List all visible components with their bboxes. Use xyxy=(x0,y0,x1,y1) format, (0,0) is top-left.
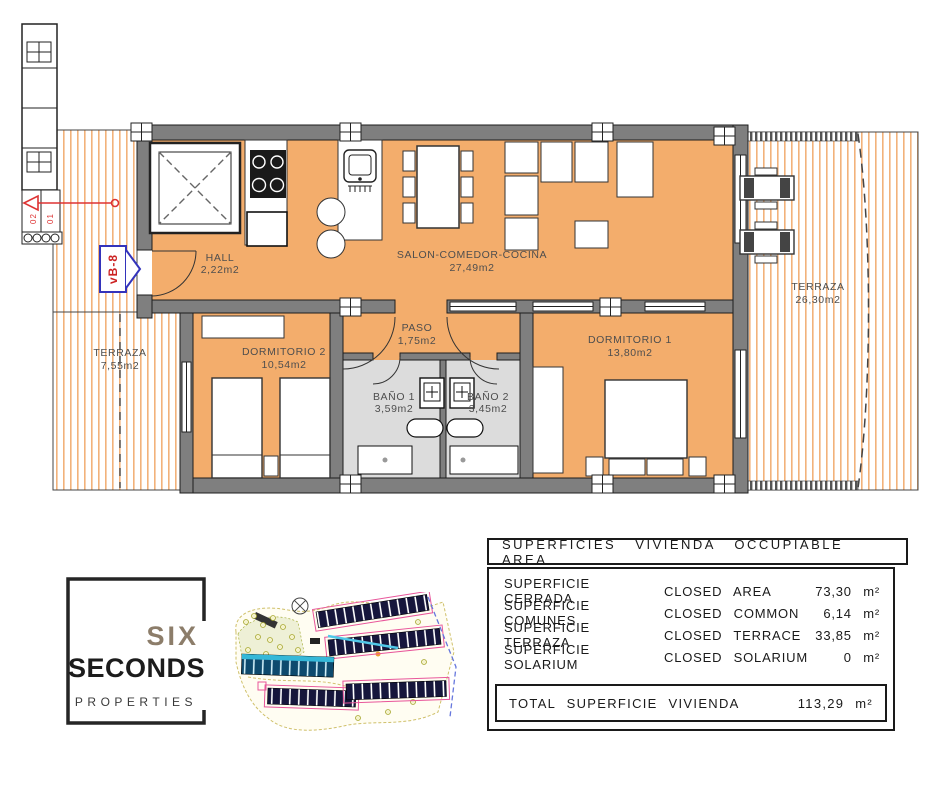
row-value: 6,14 m² xyxy=(823,606,880,621)
areas-table: SUPERFICIE CERRADA CLOSED AREA 73,30 m² … xyxy=(487,567,895,731)
label-bano2-area: 3,45m2 xyxy=(469,403,508,415)
row-label-en: CLOSED COMMON xyxy=(664,606,823,621)
row-label-en: CLOSED AREA xyxy=(664,584,815,599)
unit-marker-label: vB-8 xyxy=(106,254,120,284)
shaft xyxy=(150,143,240,233)
total-label: TOTAL SUPERFICIE VIVIENDA xyxy=(509,696,740,711)
label-salon-area: 27,49m2 xyxy=(449,262,494,274)
label-salon: SALON-COMEDOR-COCINA xyxy=(397,249,547,261)
bedroom1-furniture xyxy=(533,367,706,476)
stair-level-01: 01 xyxy=(46,213,55,224)
flyer-page: 02 01 vB-8 xyxy=(0,0,940,788)
label-terraza-left-area: 7,55m2 xyxy=(101,360,140,372)
row-label-en: CLOSED SOLARIUM xyxy=(664,650,844,665)
areas-table-title: SUPERFICIES VIVIENDA OCCUPIABLE AREA xyxy=(502,537,906,567)
floor-plan: 02 01 vB-8 xyxy=(0,0,940,520)
label-dormitorio2-area: 10,54m2 xyxy=(261,359,306,371)
stair-core xyxy=(22,24,62,244)
areas-table-title-box: SUPERFICIES VIVIENDA OCCUPIABLE AREA xyxy=(487,538,908,565)
site-plan xyxy=(228,592,463,740)
table-row: SUPERFICIE SOLARIUM CLOSED SOLARIUM 0 m² xyxy=(489,646,893,668)
label-terraza-right-area: 26,30m2 xyxy=(795,294,840,306)
logo-word-properties: PROPERTIES xyxy=(66,695,206,709)
logo: SIX SECONDS PROPERTIES xyxy=(66,577,206,725)
row-value: 33,85 m² xyxy=(815,628,880,643)
stair-level-02: 02 xyxy=(29,213,38,224)
label-dormitorio2: DORMITORIO 2 xyxy=(242,346,326,358)
label-hall: HALL xyxy=(206,252,235,264)
dining-set xyxy=(403,146,473,228)
label-dormitorio1: DORMITORIO 1 xyxy=(588,334,672,346)
label-terraza-left: TERRAZA xyxy=(93,347,146,359)
row-value: 0 m² xyxy=(844,650,880,665)
total-value: 113,29 m² xyxy=(798,696,873,711)
row-label-es: SUPERFICIE SOLARIUM xyxy=(504,642,664,672)
label-bano1-area: 3,59m2 xyxy=(375,403,414,415)
label-bano1: BAÑO 1 xyxy=(373,390,415,403)
row-value: 73,30 m² xyxy=(815,584,880,599)
label-bano2: BAÑO 2 xyxy=(467,390,509,403)
total-row: TOTAL SUPERFICIE VIVIENDA 113,29 m² xyxy=(495,684,887,722)
label-dormitorio1-area: 13,80m2 xyxy=(607,347,652,359)
label-hall-area: 2,22m2 xyxy=(201,264,240,276)
label-paso: PASO xyxy=(402,322,433,334)
label-terraza-right: TERRAZA xyxy=(791,281,844,293)
label-paso-area: 1,75m2 xyxy=(398,335,437,347)
logo-word-six: SIX xyxy=(146,621,199,652)
logo-word-seconds: SECONDS xyxy=(68,653,204,684)
row-label-en: CLOSED TERRACE xyxy=(664,628,815,643)
